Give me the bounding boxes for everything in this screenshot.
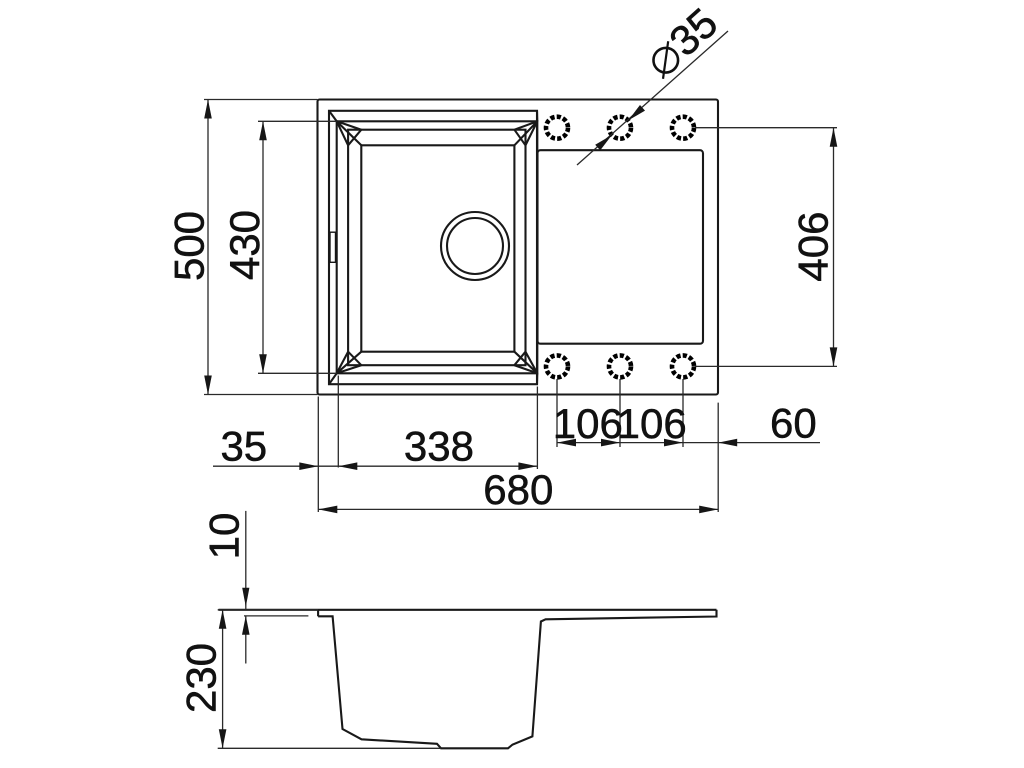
svg-text:106: 106	[617, 400, 687, 447]
svg-text:230: 230	[177, 643, 224, 713]
svg-text:106: 106	[553, 400, 623, 447]
svg-text:430: 430	[221, 210, 268, 280]
svg-text:338: 338	[404, 423, 474, 470]
svg-text:35: 35	[220, 423, 267, 470]
svg-text:500: 500	[166, 211, 213, 281]
svg-text:60: 60	[770, 400, 817, 447]
svg-text:406: 406	[790, 212, 837, 282]
svg-text:680: 680	[483, 466, 553, 513]
svg-text:10: 10	[201, 513, 248, 560]
